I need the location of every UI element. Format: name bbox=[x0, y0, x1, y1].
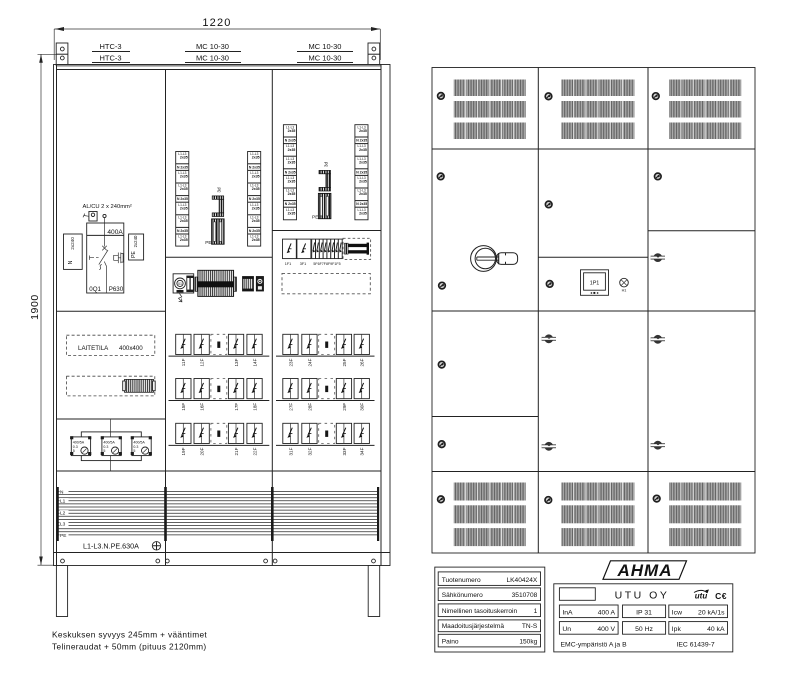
svg-text:2x35: 2x35 bbox=[252, 175, 260, 179]
svg-text:28F: 28F bbox=[307, 403, 312, 411]
svg-text:N 2x35: N 2x35 bbox=[249, 229, 260, 233]
svg-text:N 2x35: N 2x35 bbox=[356, 170, 367, 174]
svg-text:Keskuksen syvyys 245mm + väänt: Keskuksen syvyys 245mm + vääntimet bbox=[52, 630, 207, 640]
svg-text:400 A: 400 A bbox=[598, 609, 616, 616]
svg-text:AHMA: AHMA bbox=[617, 561, 673, 580]
svg-text:2x35: 2x35 bbox=[252, 219, 260, 223]
svg-text:1: 1 bbox=[534, 608, 538, 615]
svg-text:Tuotenumero: Tuotenumero bbox=[442, 577, 481, 584]
svg-text:5: 5 bbox=[103, 449, 105, 453]
svg-text:UTU OY: UTU OY bbox=[615, 590, 670, 602]
svg-text:34F: 34F bbox=[360, 447, 365, 455]
svg-text:PE: PE bbox=[131, 251, 137, 258]
svg-text:Un: Un bbox=[562, 626, 571, 633]
svg-text:Ipk: Ipk bbox=[672, 626, 682, 633]
svg-text:2x35: 2x35 bbox=[359, 192, 367, 196]
svg-text:H1: H1 bbox=[622, 289, 627, 293]
svg-text:13F: 13F bbox=[234, 358, 239, 366]
svg-text:01: 01 bbox=[178, 282, 182, 286]
svg-text:N: N bbox=[60, 489, 64, 495]
svg-text:LK40424X: LK40424X bbox=[506, 577, 537, 584]
svg-text:5F6F7F8F9F1F5: 5F6F7F8F9F1F5 bbox=[313, 262, 340, 266]
svg-text:2x240: 2x240 bbox=[133, 235, 138, 247]
svg-text:◂ ■ ▸: ◂ ■ ▸ bbox=[590, 290, 599, 295]
svg-text:N 2x35: N 2x35 bbox=[249, 197, 260, 201]
svg-text:400/5A: 400/5A bbox=[73, 440, 85, 444]
svg-text:2x35: 2x35 bbox=[180, 187, 188, 191]
svg-text:IEC 61439-7: IEC 61439-7 bbox=[677, 642, 715, 649]
svg-text:0.3: 0.3 bbox=[133, 445, 138, 449]
svg-text:2x35: 2x35 bbox=[288, 192, 296, 196]
svg-text:2x35: 2x35 bbox=[359, 211, 367, 215]
svg-text:15F: 15F bbox=[181, 403, 186, 411]
svg-text:25F: 25F bbox=[342, 358, 347, 366]
svg-text:2x35: 2x35 bbox=[252, 156, 260, 160]
svg-text:20 kA/1s: 20 kA/1s bbox=[698, 609, 725, 616]
svg-text:2x35: 2x35 bbox=[252, 238, 260, 242]
svg-text:HTC-3: HTC-3 bbox=[99, 42, 121, 51]
svg-text:PE: PE bbox=[205, 240, 211, 246]
svg-text:MC 10-30: MC 10-30 bbox=[309, 54, 342, 63]
svg-text:N 2x35: N 2x35 bbox=[177, 165, 188, 169]
svg-text:400 V: 400 V bbox=[597, 626, 615, 633]
svg-text:MC 10-30: MC 10-30 bbox=[309, 42, 342, 51]
svg-text:2x35: 2x35 bbox=[180, 238, 188, 242]
svg-text:2x35: 2x35 bbox=[252, 187, 260, 191]
svg-text:N 2x35: N 2x35 bbox=[356, 139, 367, 143]
svg-text:17F: 17F bbox=[234, 403, 239, 411]
svg-text:3d: 3d bbox=[217, 187, 222, 193]
svg-text:0.3: 0.3 bbox=[73, 445, 78, 449]
svg-text:400A: 400A bbox=[107, 229, 123, 236]
svg-text:LAITETILA: LAITETILA bbox=[78, 345, 109, 352]
svg-text:23F: 23F bbox=[288, 358, 293, 366]
svg-text:20F: 20F bbox=[200, 447, 205, 455]
svg-text:N 2x35: N 2x35 bbox=[285, 202, 296, 206]
svg-text:2x35: 2x35 bbox=[252, 206, 260, 210]
svg-text:2x35: 2x35 bbox=[359, 148, 367, 152]
svg-text:1220: 1220 bbox=[202, 17, 231, 29]
svg-text:3F1: 3F1 bbox=[300, 262, 307, 266]
svg-text:Nimellinen tasoituskerroin: Nimellinen tasoituskerroin bbox=[442, 608, 518, 615]
svg-text:N 2x35: N 2x35 bbox=[177, 229, 188, 233]
svg-text:400/5A: 400/5A bbox=[103, 440, 115, 444]
svg-text:26F: 26F bbox=[360, 358, 365, 366]
svg-text:N: N bbox=[68, 260, 74, 264]
svg-text:2x35: 2x35 bbox=[180, 156, 188, 160]
svg-text:Maadoitusjärjestelmä: Maadoitusjärjestelmä bbox=[442, 623, 505, 630]
svg-text:16F: 16F bbox=[200, 403, 205, 411]
svg-text:0.3: 0.3 bbox=[103, 445, 108, 449]
svg-text:22F: 22F bbox=[252, 447, 257, 455]
svg-text:400/5A: 400/5A bbox=[133, 440, 145, 444]
svg-text:30F: 30F bbox=[360, 403, 365, 411]
svg-text:3510708: 3510708 bbox=[512, 592, 538, 599]
svg-text:AL/CU 2 x 240mm²: AL/CU 2 x 240mm² bbox=[83, 204, 132, 210]
svg-text:Paino: Paino bbox=[442, 638, 459, 645]
svg-text:C€: C€ bbox=[715, 591, 727, 601]
svg-text:1F1: 1F1 bbox=[285, 262, 292, 266]
svg-text:27F: 27F bbox=[288, 403, 293, 411]
svg-text:31F: 31F bbox=[288, 447, 293, 455]
svg-text:PE: PE bbox=[312, 214, 318, 220]
svg-text:19F: 19F bbox=[181, 447, 186, 455]
svg-text:2x35: 2x35 bbox=[288, 180, 296, 184]
svg-text:2x35: 2x35 bbox=[359, 129, 367, 133]
svg-text:2x35: 2x35 bbox=[288, 148, 296, 152]
svg-text:32F: 32F bbox=[307, 447, 312, 455]
svg-text:Icw: Icw bbox=[672, 609, 682, 616]
svg-text:L1: L1 bbox=[60, 498, 66, 504]
svg-text:2x35: 2x35 bbox=[288, 160, 296, 164]
svg-text:2x35: 2x35 bbox=[288, 129, 296, 133]
svg-text:18F: 18F bbox=[252, 403, 257, 411]
svg-text:MC 10-30: MC 10-30 bbox=[196, 54, 229, 63]
svg-text:14F: 14F bbox=[252, 358, 257, 366]
svg-text:N 2x35: N 2x35 bbox=[356, 202, 367, 206]
svg-text:N 2x35: N 2x35 bbox=[285, 170, 296, 174]
svg-text:2x240: 2x240 bbox=[70, 237, 75, 250]
svg-text:InA: InA bbox=[562, 609, 573, 616]
svg-text:12F: 12F bbox=[200, 358, 205, 366]
svg-text:2x35: 2x35 bbox=[180, 175, 188, 179]
svg-text:40 kA: 40 kA bbox=[707, 626, 725, 633]
svg-text:2x35: 2x35 bbox=[359, 180, 367, 184]
svg-text:Telineraudat + 50mm (pituus 21: Telineraudat + 50mm (pituus 2120mm) bbox=[52, 642, 207, 652]
svg-text:11F: 11F bbox=[181, 358, 186, 366]
svg-text:IP 31: IP 31 bbox=[636, 609, 652, 616]
svg-text:400x400: 400x400 bbox=[119, 345, 143, 352]
svg-text:33F: 33F bbox=[342, 447, 347, 455]
svg-text:EMC-ympäristö A ja B: EMC-ympäristö A ja B bbox=[561, 642, 628, 649]
svg-text:N 2x35: N 2x35 bbox=[285, 139, 296, 143]
svg-text:2x35: 2x35 bbox=[180, 206, 188, 210]
svg-text:29F: 29F bbox=[342, 403, 347, 411]
svg-text:2x35: 2x35 bbox=[288, 211, 296, 215]
svg-text:1900: 1900 bbox=[29, 294, 41, 320]
svg-text:N 2x35: N 2x35 bbox=[177, 197, 188, 201]
svg-text:2x35: 2x35 bbox=[180, 219, 188, 223]
svg-text:TN-S: TN-S bbox=[522, 623, 538, 630]
svg-text:3d: 3d bbox=[324, 161, 329, 167]
svg-text:24F: 24F bbox=[307, 358, 312, 366]
svg-text:21F: 21F bbox=[234, 447, 239, 455]
svg-text:utu: utu bbox=[695, 592, 708, 601]
svg-text:Sähkönumero: Sähkönumero bbox=[442, 592, 483, 599]
svg-text:P630: P630 bbox=[109, 286, 124, 293]
svg-text:50 Hz: 50 Hz bbox=[635, 626, 653, 633]
svg-text:150kg: 150kg bbox=[519, 638, 537, 645]
svg-text:1P1: 1P1 bbox=[590, 281, 600, 287]
svg-text:L1-L3.N.PE.630A: L1-L3.N.PE.630A bbox=[83, 541, 139, 550]
svg-text:HTC-3: HTC-3 bbox=[99, 54, 121, 63]
svg-text:MC 10-30: MC 10-30 bbox=[196, 42, 229, 51]
svg-text:L2: L2 bbox=[60, 510, 66, 516]
svg-text:2x35: 2x35 bbox=[359, 160, 367, 164]
svg-text:PE: PE bbox=[60, 533, 66, 539]
svg-text:L3: L3 bbox=[60, 522, 66, 528]
svg-text:5: 5 bbox=[133, 449, 135, 453]
svg-text:N 2x35: N 2x35 bbox=[249, 165, 260, 169]
svg-text:5: 5 bbox=[73, 449, 75, 453]
svg-text:0Q1: 0Q1 bbox=[89, 286, 101, 293]
